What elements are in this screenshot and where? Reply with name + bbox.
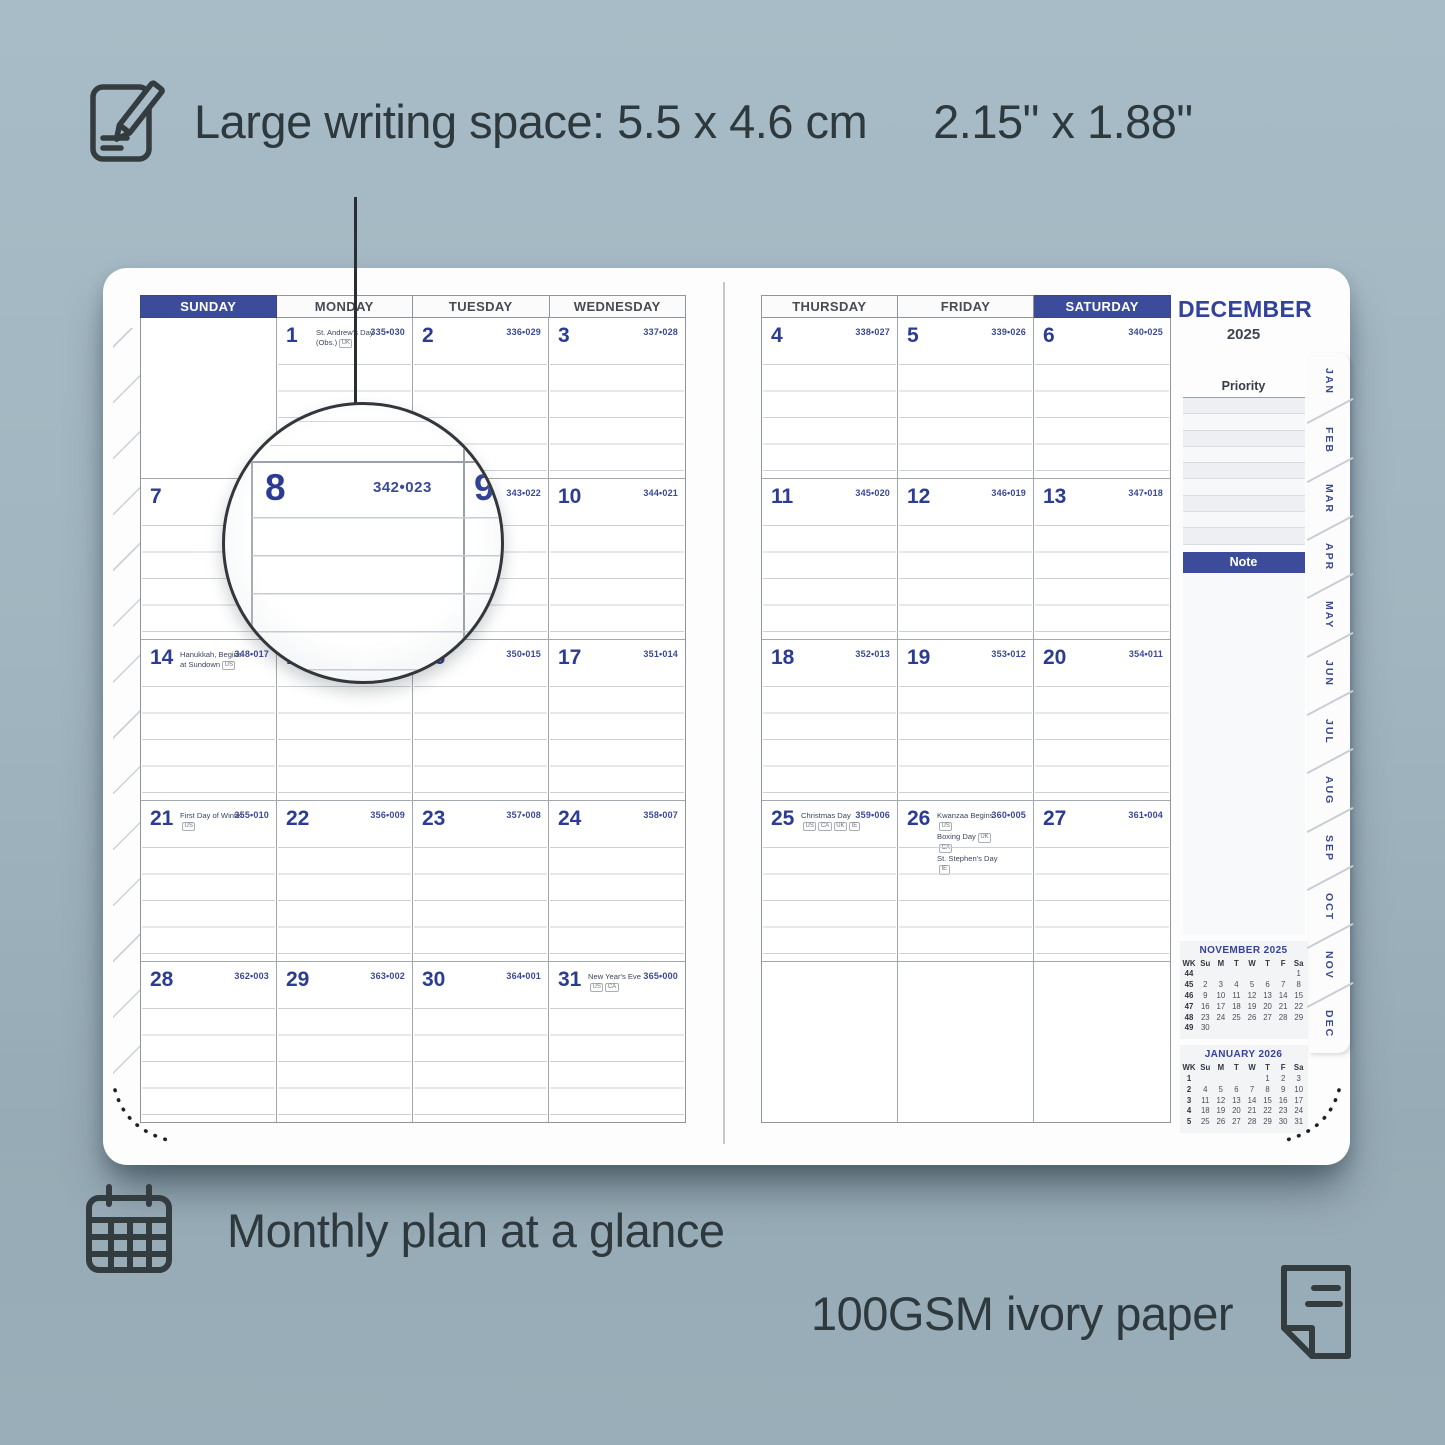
- julian-day-count: 352•013: [855, 649, 890, 659]
- calendar-right-page: THURSDAYFRIDAYSATURDAY 4338•0275339•0266…: [761, 295, 1171, 1123]
- priority-heading: Priority: [1178, 379, 1309, 393]
- mini-cal-day: 25: [1229, 1013, 1245, 1024]
- country-badge-uk: UK: [978, 833, 991, 843]
- mini-cal-day: 6: [1229, 1085, 1245, 1096]
- holiday-label: New Year's EveUSCA: [588, 972, 652, 993]
- priority-line: [1183, 496, 1305, 512]
- month-sidebar: DECEMBER 2025 Priority Note NOVEMBER 202…: [1178, 282, 1309, 1152]
- writing-lines: [1035, 847, 1169, 960]
- month-tab-jul: JUL: [1323, 703, 1335, 761]
- paper-sheet-icon: [1272, 1262, 1360, 1362]
- week-number: 49: [1181, 1023, 1198, 1034]
- day-number: 24: [558, 807, 581, 831]
- holiday-label: St. Andrew's Day (Obs.)UK: [316, 328, 380, 349]
- writing-lines: [278, 1008, 411, 1121]
- mini-cal-header: F: [1275, 1063, 1291, 1074]
- day-cell-18: 18352•013: [762, 640, 898, 801]
- day-number: 4: [771, 324, 783, 348]
- julian-day-count: 339•026: [991, 327, 1026, 337]
- mini-cal-day: 6: [1260, 980, 1276, 991]
- priority-line: [1183, 447, 1305, 463]
- month-tab-sep: SEP: [1323, 820, 1335, 878]
- page-gutter: [723, 282, 725, 1144]
- mini-cal-day: 21: [1275, 1002, 1291, 1013]
- writing-lines: [763, 847, 896, 960]
- julian-day-count: 336•029: [506, 327, 541, 337]
- day-number: 14: [150, 646, 173, 670]
- week-number: 44: [1181, 969, 1198, 980]
- mini-cal-day: 10: [1213, 991, 1229, 1002]
- day-cell-24: 24358•007: [549, 801, 685, 962]
- country-badge-us: US: [803, 822, 816, 832]
- week-number: 5: [1181, 1117, 1198, 1128]
- julian-day-count: 356•009: [370, 810, 405, 820]
- day-cell-empty: [898, 962, 1034, 1122]
- mini-cal-day: [1198, 969, 1214, 980]
- stitch-dots-left: [111, 1080, 191, 1152]
- mini-cal-header: WK: [1181, 1063, 1198, 1074]
- writing-lines: [414, 1008, 547, 1121]
- day-number: 25: [771, 807, 794, 831]
- mini-calendar: NOVEMBER 2025WKSuMTWTFSa4414523456784691…: [1180, 941, 1308, 1040]
- mini-cal-header: T: [1229, 1063, 1245, 1074]
- mini-cal-day: 16: [1198, 1002, 1214, 1013]
- mini-cal-header: Sa: [1291, 1063, 1307, 1074]
- mini-cal-day: [1244, 969, 1260, 980]
- mini-cal-day: 4: [1229, 980, 1245, 991]
- writing-lines: [899, 364, 1032, 477]
- holiday-label: First Day of WinterUS: [180, 811, 244, 832]
- day-number: 1: [286, 324, 298, 348]
- day-cell-empty: [762, 962, 898, 1122]
- mini-cal-day: 15: [1291, 991, 1307, 1002]
- day-number: 3: [558, 324, 570, 348]
- day-cell-26: 26360•005Kwanzaa BeginsUSBoxing DayUKCAS…: [898, 801, 1034, 962]
- day-cell-23: 23357•008: [413, 801, 549, 962]
- country-badge-us: US: [939, 822, 952, 832]
- month-tab-aug: AUG: [1323, 761, 1335, 819]
- monthly-plan-text: Monthly plan at a glance: [227, 1203, 725, 1258]
- country-badge-ie: IE: [849, 822, 860, 832]
- month-tab-mar: MAR: [1323, 470, 1335, 528]
- day-header-sunday: SUNDAY: [140, 295, 277, 318]
- writing-lines: [278, 686, 411, 799]
- mini-cal-header: Su: [1198, 959, 1214, 970]
- day-cell-17: 17351•014: [549, 640, 685, 801]
- day-number: 18: [771, 646, 794, 670]
- julian-day-count: 357•008: [506, 810, 541, 820]
- mini-cal-day: 17: [1213, 1002, 1229, 1013]
- mini-cal-day: 1: [1291, 969, 1307, 980]
- writing-lines: [550, 525, 684, 638]
- day-number: 22: [286, 807, 309, 831]
- julian-day-count: 340•025: [1128, 327, 1163, 337]
- week-number: 1: [1181, 1074, 1198, 1085]
- mini-calendar-title: JANUARY 2026: [1181, 1049, 1307, 1060]
- day-cell-31: 31365•000New Year's EveUSCA: [549, 962, 685, 1122]
- day-number: 17: [558, 646, 581, 670]
- mini-cal-day: 5: [1213, 1085, 1229, 1096]
- priority-line: [1183, 431, 1305, 447]
- mini-cal-header: F: [1275, 959, 1291, 970]
- mini-cal-header: Su: [1198, 1063, 1214, 1074]
- mini-cal-day: 21: [1244, 1106, 1260, 1117]
- day-cell-4: 4338•027: [762, 318, 898, 479]
- julian-day-count: 337•028: [643, 327, 678, 337]
- mini-cal-day: 8: [1291, 980, 1307, 991]
- day-cell-5: 5339•026: [898, 318, 1034, 479]
- mini-cal-day: 14: [1244, 1096, 1260, 1107]
- mini-cal-day: 26: [1213, 1117, 1229, 1128]
- day-number: 6: [1043, 324, 1055, 348]
- country-badge-us: US: [590, 983, 603, 993]
- julian-day-count: 346•019: [991, 488, 1026, 498]
- julian-day-count: 351•014: [643, 649, 678, 659]
- mini-cal-day: 25: [1198, 1117, 1214, 1128]
- writing-lines: [1035, 364, 1169, 477]
- mini-cal-day: 20: [1229, 1106, 1245, 1117]
- month-title: DECEMBER: [1178, 296, 1309, 323]
- mini-cal-day: 19: [1213, 1106, 1229, 1117]
- julian-day-count: 338•027: [855, 327, 890, 337]
- priority-lines: [1183, 397, 1305, 545]
- day-cell-27: 27361•004: [1034, 801, 1170, 962]
- julian-day-count: 358•007: [643, 810, 678, 820]
- julian-day-count: 364•001: [506, 971, 541, 981]
- day-header-monday: MONDAY: [277, 295, 414, 318]
- julian-day-count: 347•018: [1128, 488, 1163, 498]
- monthly-plan-callout: Monthly plan at a glance: [83, 1183, 725, 1277]
- day-cell-10: 10344•021: [549, 479, 685, 640]
- day-header-friday: FRIDAY: [898, 295, 1035, 318]
- planner-monthly-spread: SUNDAYMONDAYTUESDAYWEDNESDAY 1335•030St.…: [103, 268, 1350, 1165]
- day-header-thursday: THURSDAY: [761, 295, 898, 318]
- day-number: 29: [286, 968, 309, 992]
- week-number: 48: [1181, 1013, 1198, 1024]
- day-number: 19: [907, 646, 930, 670]
- note-heading: Note: [1183, 552, 1305, 573]
- day-cell-30: 30364•001: [413, 962, 549, 1122]
- julian-day-count: 363•002: [370, 971, 405, 981]
- priority-line: [1183, 512, 1305, 528]
- julian-day-count: 362•003: [234, 971, 269, 981]
- mini-cal-day: 13: [1229, 1096, 1245, 1107]
- writing-lines: [550, 847, 684, 960]
- writing-space-metric-text: Large writing space: 5.5 x 4.6 cm: [194, 94, 867, 149]
- month-tab-jan: JAN: [1323, 353, 1335, 411]
- julian-day-count: 353•012: [991, 649, 1026, 659]
- mini-cal-day: 29: [1291, 1013, 1307, 1024]
- mini-cal-header: W: [1244, 1063, 1260, 1074]
- writing-space-callout: Large writing space: 5.5 x 4.6 cm 2.15" …: [86, 76, 1193, 166]
- week-number: 2: [1181, 1085, 1198, 1096]
- day-number: 12: [907, 485, 930, 509]
- calendar-grid-right: 4338•0275339•0266340•02511345•02012346•0…: [761, 318, 1171, 1123]
- month-tab-dec: DEC: [1323, 995, 1335, 1053]
- country-badge-ca: CA: [818, 822, 831, 832]
- writing-lines: [763, 686, 896, 799]
- mini-cal-day: 28: [1275, 1013, 1291, 1024]
- country-badge-us: US: [222, 661, 235, 671]
- mini-cal-header: WK: [1181, 959, 1198, 970]
- writing-lines: [414, 847, 547, 960]
- mini-cal-day: 7: [1244, 1085, 1260, 1096]
- month-tab-apr: APR: [1323, 528, 1335, 586]
- day-number: 31: [558, 968, 581, 992]
- week-number: 46: [1181, 991, 1198, 1002]
- priority-line: [1183, 528, 1305, 544]
- country-badge-uk: UK: [339, 339, 352, 349]
- priority-line: [1183, 463, 1305, 479]
- mini-cal-day: [1229, 1023, 1245, 1034]
- julian-day-count: 345•020: [855, 488, 890, 498]
- weekday-header-row: THURSDAYFRIDAYSATURDAY: [761, 295, 1171, 318]
- writing-lines: [550, 1008, 684, 1121]
- mini-cal-day: [1275, 969, 1291, 980]
- mini-cal-day: [1275, 1023, 1291, 1034]
- day-cell-empty: [1034, 962, 1170, 1122]
- mini-cal-day: 19: [1244, 1002, 1260, 1013]
- mini-cal-day: 22: [1291, 1002, 1307, 1013]
- month-tab-oct: OCT: [1323, 878, 1335, 936]
- country-badge-us: US: [182, 822, 195, 832]
- mini-cal-header: M: [1213, 959, 1229, 970]
- mini-cal-day: [1260, 969, 1276, 980]
- month-tab-nov: NOV: [1323, 936, 1335, 994]
- writing-lines: [899, 686, 1032, 799]
- notepad-pencil-icon: [86, 76, 170, 166]
- week-number: 45: [1181, 980, 1198, 991]
- writing-lines: [763, 525, 896, 638]
- day-number: 5: [907, 324, 919, 348]
- writing-lines: [1035, 686, 1169, 799]
- holiday-label: Hanukkah, Begins at SundownUS: [180, 650, 244, 671]
- writing-lines: [278, 847, 411, 960]
- mini-cal-day: 7: [1275, 980, 1291, 991]
- mini-calendar-title: NOVEMBER 2025: [1181, 945, 1307, 956]
- week-number: 4: [1181, 1106, 1198, 1117]
- day-number: 10: [558, 485, 581, 509]
- julian-day-count: 350•015: [506, 649, 541, 659]
- mini-cal-day: 4: [1198, 1085, 1214, 1096]
- julian-day-count: 344•021: [643, 488, 678, 498]
- mini-cal-header: M: [1213, 1063, 1229, 1074]
- month-tab-jun: JUN: [1323, 645, 1335, 703]
- country-badge-ca: CA: [605, 983, 618, 993]
- mini-cal-day: 14: [1275, 991, 1291, 1002]
- mini-cal-day: [1213, 1023, 1229, 1034]
- mini-cal-day: [1229, 1074, 1245, 1085]
- mini-cal-day: 18: [1229, 1002, 1245, 1013]
- writing-space-imperial-text: 2.15" x 1.88": [933, 94, 1192, 149]
- magnifier-pointer-line: [354, 197, 357, 404]
- stitch-dots-right: [1263, 1080, 1343, 1152]
- day-cell-12: 12346•019: [898, 479, 1034, 640]
- mini-cal-day: 2: [1198, 980, 1214, 991]
- mini-cal-day: 12: [1244, 991, 1260, 1002]
- day-header-tuesday: TUESDAY: [413, 295, 550, 318]
- day-number: 20: [1043, 646, 1066, 670]
- mini-cal-day: 9: [1198, 991, 1214, 1002]
- magnifier-circle: 8 342•023 9: [222, 402, 504, 684]
- day-number: 30: [422, 968, 445, 992]
- day-number: 11: [771, 485, 793, 509]
- mini-cal-header: T: [1260, 959, 1276, 970]
- mini-cal-day: 11: [1229, 991, 1245, 1002]
- day-header-saturday: SATURDAY: [1034, 295, 1171, 318]
- writing-lines: [1035, 525, 1169, 638]
- julian-day-count: 361•004: [1128, 810, 1163, 820]
- day-number: 28: [150, 968, 173, 992]
- mini-cal-day: 30: [1198, 1023, 1214, 1034]
- mini-cal-header: T: [1260, 1063, 1276, 1074]
- weekday-header-row: SUNDAYMONDAYTUESDAYWEDNESDAY: [140, 295, 686, 318]
- mini-cal-day: 11: [1198, 1096, 1214, 1107]
- priority-line: [1183, 414, 1305, 430]
- mini-cal-day: 23: [1198, 1013, 1214, 1024]
- day-cell-21: 21355•010First Day of WinterUS: [141, 801, 277, 962]
- mini-cal-day: 18: [1198, 1106, 1214, 1117]
- year-label: 2025: [1178, 326, 1309, 343]
- writing-lines: [142, 686, 275, 799]
- magnifier-glass-shading: [225, 405, 501, 681]
- day-number: 23: [422, 807, 445, 831]
- day-cell-22: 22356•009: [277, 801, 413, 962]
- writing-lines: [550, 364, 684, 477]
- week-number: 47: [1181, 1002, 1198, 1013]
- priority-line: [1183, 398, 1305, 414]
- mini-cal-day: 20: [1260, 1002, 1276, 1013]
- mini-cal-day: [1213, 969, 1229, 980]
- mini-cal-day: [1244, 1074, 1260, 1085]
- day-cell-20: 20354•011: [1034, 640, 1170, 801]
- mini-cal-day: 24: [1213, 1013, 1229, 1024]
- mini-cal-header: W: [1244, 959, 1260, 970]
- week-number: 3: [1181, 1096, 1198, 1107]
- holiday-label: Christmas DayUSCAUKIE: [801, 811, 865, 832]
- mini-cal-day: [1198, 1074, 1214, 1085]
- day-number: 2: [422, 324, 434, 348]
- day-header-wednesday: WEDNESDAY: [550, 295, 687, 318]
- mini-cal-header: T: [1229, 959, 1245, 970]
- day-number: 27: [1043, 807, 1066, 831]
- mini-cal-day: [1213, 1074, 1229, 1085]
- mini-cal-day: [1291, 1023, 1307, 1034]
- priority-line: [1183, 479, 1305, 495]
- day-cell-29: 29363•002: [277, 962, 413, 1122]
- mini-cal-day: 5: [1244, 980, 1260, 991]
- mini-cal-day: 13: [1260, 991, 1276, 1002]
- mini-cal-day: 12: [1213, 1096, 1229, 1107]
- writing-lines: [899, 525, 1032, 638]
- day-number: 26: [907, 807, 930, 831]
- calendar-grid-icon: [83, 1183, 175, 1277]
- mini-cal-day: 28: [1244, 1117, 1260, 1128]
- writing-lines: [414, 686, 547, 799]
- month-tab-may: MAY: [1323, 586, 1335, 644]
- writing-lines: [899, 847, 1032, 960]
- mini-cal-day: [1260, 1023, 1276, 1034]
- month-tab-strip: JANFEBMARAPRMAYJUNJULAUGSEPOCTNOVDEC: [1309, 353, 1350, 1053]
- page-edge-hatch: [113, 328, 141, 1100]
- mini-cal-day: 27: [1229, 1117, 1245, 1128]
- writing-lines: [763, 364, 896, 477]
- day-number: 13: [1043, 485, 1066, 509]
- day-cell-19: 19353•012: [898, 640, 1034, 801]
- note-writing-area: [1183, 573, 1305, 935]
- day-number: 21: [150, 807, 173, 831]
- day-cell-3: 3337•028: [549, 318, 685, 479]
- julian-day-count: 354•011: [1129, 649, 1163, 659]
- writing-lines: [142, 847, 275, 960]
- day-cell-13: 13347•018: [1034, 479, 1170, 640]
- mini-cal-day: [1244, 1023, 1260, 1034]
- julian-day-count: 343•022: [506, 488, 541, 498]
- mini-cal-day: 26: [1244, 1013, 1260, 1024]
- paper-spec-text: 100GSM ivory paper: [811, 1286, 1233, 1341]
- mini-calendar-grid: WKSuMTWTFSa44145234567846910111213141547…: [1181, 959, 1307, 1035]
- mini-cal-day: 27: [1260, 1013, 1276, 1024]
- country-badge-uk: UK: [834, 822, 847, 832]
- mini-cal-day: 3: [1213, 980, 1229, 991]
- writing-lines: [550, 686, 684, 799]
- mini-cal-day: [1229, 969, 1245, 980]
- day-cell-25: 25359•006Christmas DayUSCAUKIE: [762, 801, 898, 962]
- day-cell-6: 6340•025: [1034, 318, 1170, 479]
- mini-cal-header: Sa: [1291, 959, 1307, 970]
- day-cell-11: 11345•020: [762, 479, 898, 640]
- month-tab-feb: FEB: [1323, 411, 1335, 469]
- day-number: 7: [150, 485, 162, 509]
